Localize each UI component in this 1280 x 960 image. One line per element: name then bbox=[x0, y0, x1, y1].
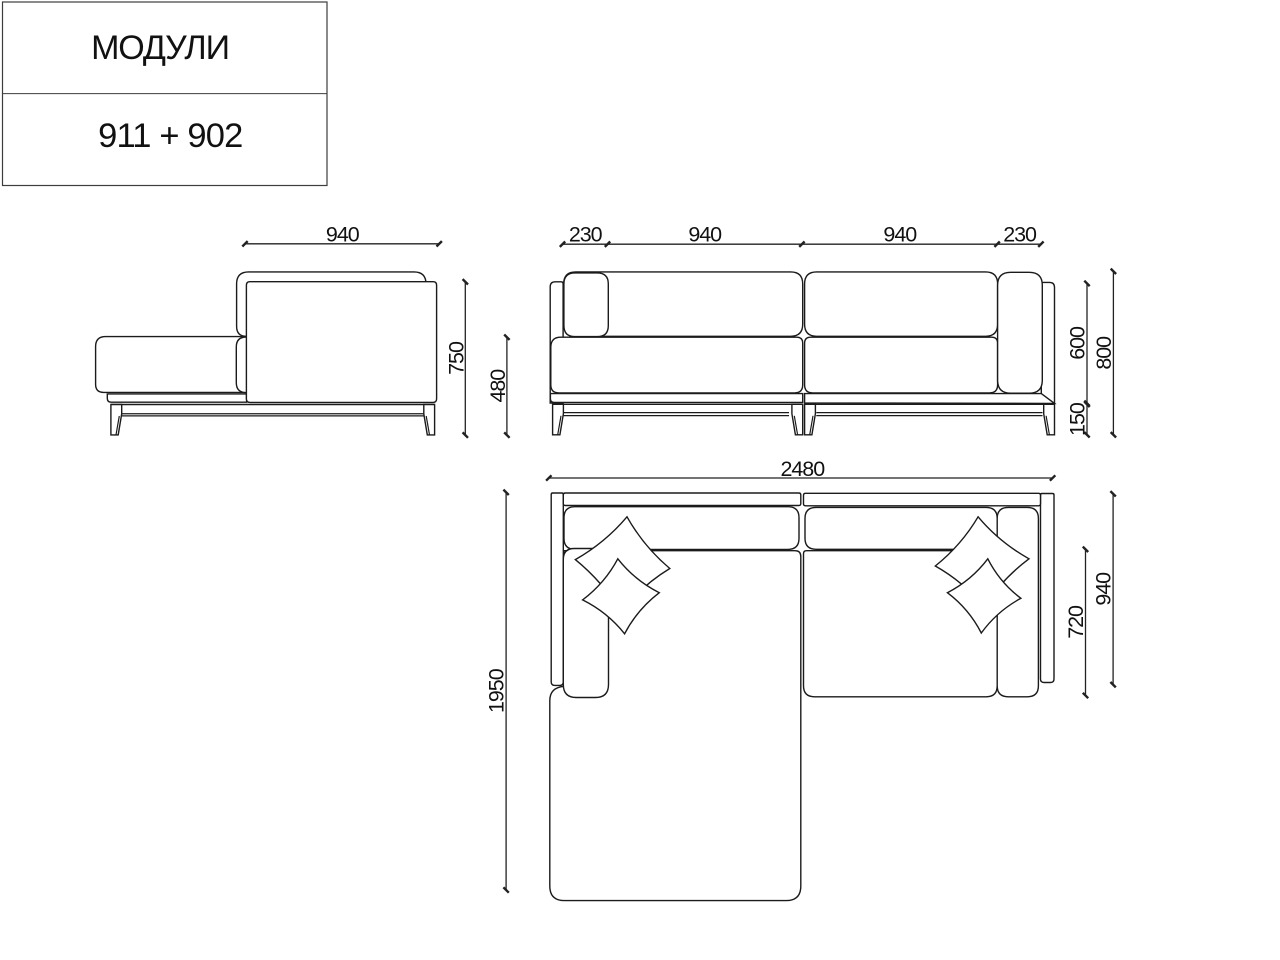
svg-text:720: 720 bbox=[1064, 605, 1088, 639]
svg-text:940: 940 bbox=[1092, 572, 1116, 606]
svg-text:940: 940 bbox=[688, 223, 722, 247]
svg-text:150: 150 bbox=[1065, 402, 1089, 436]
svg-text:230: 230 bbox=[569, 223, 603, 247]
svg-text:МОДУЛИ: МОДУЛИ bbox=[91, 29, 229, 67]
svg-text:480: 480 bbox=[486, 369, 510, 403]
svg-text:1950: 1950 bbox=[485, 668, 509, 713]
svg-text:750: 750 bbox=[444, 341, 468, 375]
svg-text:940: 940 bbox=[326, 223, 360, 247]
svg-text:2480: 2480 bbox=[780, 457, 825, 481]
svg-text:940: 940 bbox=[883, 223, 917, 247]
svg-text:230: 230 bbox=[1003, 223, 1037, 247]
svg-text:800: 800 bbox=[1092, 336, 1116, 370]
svg-text:911 + 902: 911 + 902 bbox=[98, 117, 242, 155]
svg-text:600: 600 bbox=[1065, 326, 1089, 360]
